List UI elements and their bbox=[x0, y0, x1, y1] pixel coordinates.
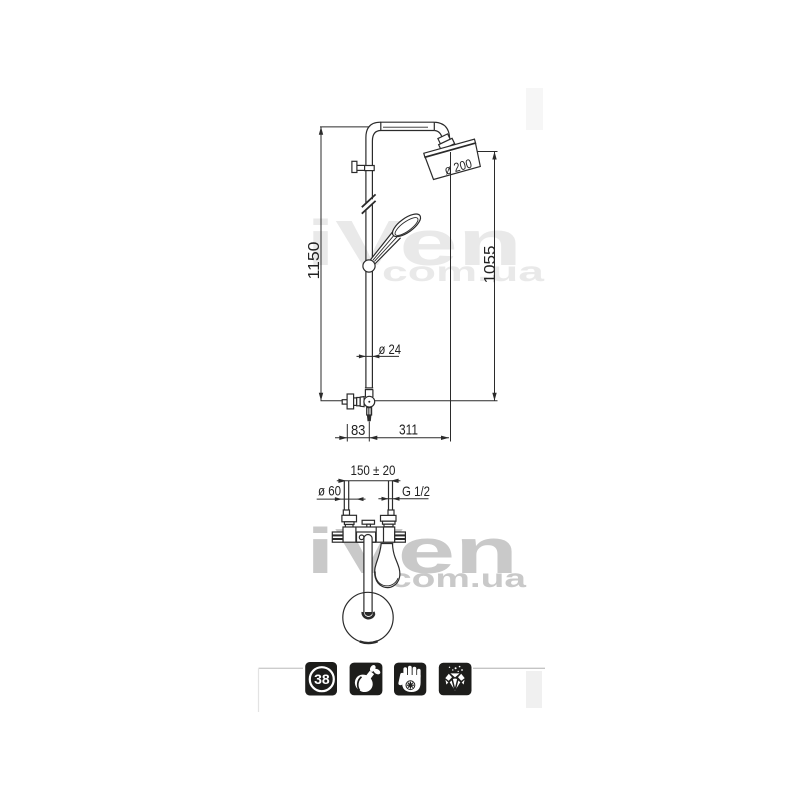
svg-text:311: 311 bbox=[399, 423, 418, 439]
svg-text:com.ua: com.ua bbox=[390, 563, 527, 593]
svg-text:G 1/2: G 1/2 bbox=[402, 483, 430, 499]
svg-text:38: 38 bbox=[314, 671, 330, 687]
svg-text:ø 24: ø 24 bbox=[379, 341, 402, 357]
svg-text:150 ± 20: 150 ± 20 bbox=[351, 462, 396, 478]
svg-text:1150: 1150 bbox=[306, 241, 323, 279]
svg-text:83: 83 bbox=[351, 423, 366, 439]
svg-text:com.ua: com.ua bbox=[382, 256, 545, 287]
svg-text:ø 60: ø 60 bbox=[318, 482, 341, 498]
svg-text:1055: 1055 bbox=[482, 245, 499, 283]
